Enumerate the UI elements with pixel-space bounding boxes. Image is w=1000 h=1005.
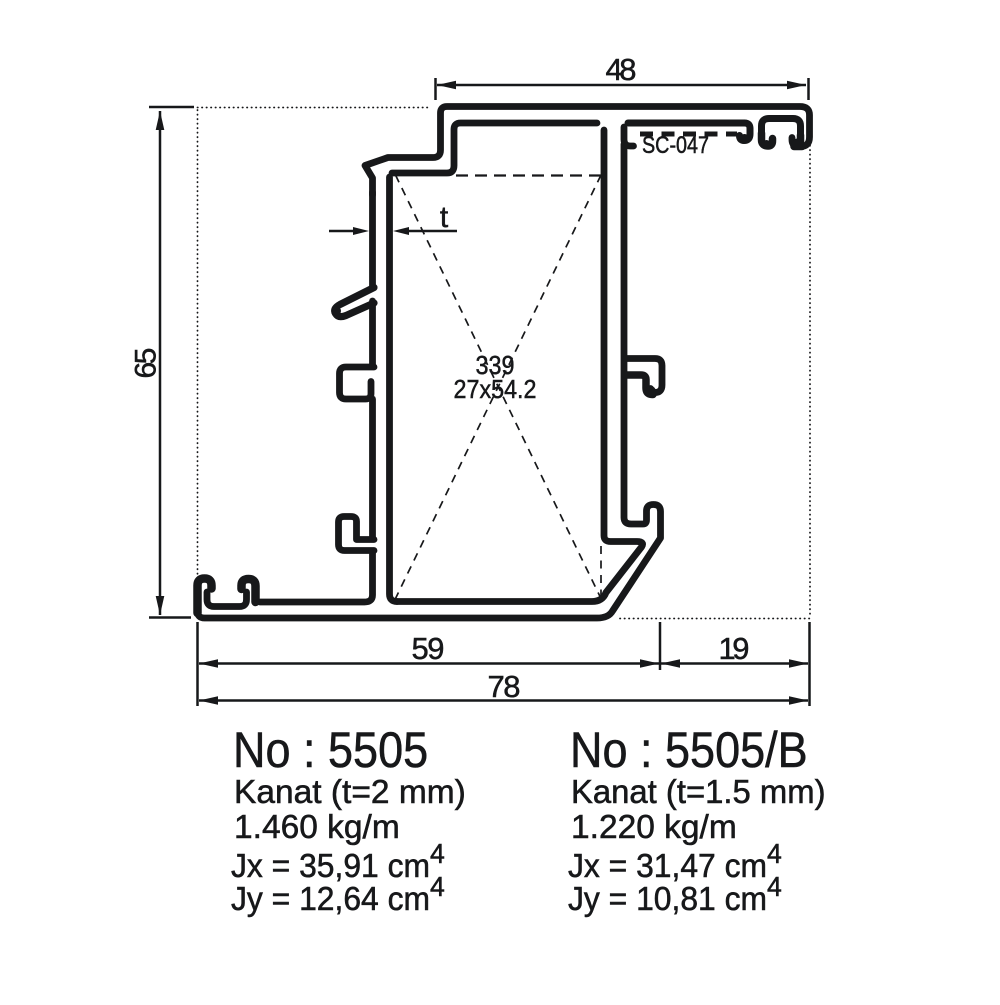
- svg-text:59: 59: [412, 631, 445, 666]
- svg-text:SC-047: SC-047: [642, 132, 709, 159]
- svg-text:65: 65: [130, 348, 163, 379]
- svg-text:19: 19: [719, 631, 750, 666]
- svg-text:78: 78: [488, 669, 521, 704]
- svg-text:27x54.2: 27x54.2: [454, 374, 537, 404]
- svg-text:t: t: [440, 201, 449, 234]
- svg-text:48: 48: [606, 52, 637, 87]
